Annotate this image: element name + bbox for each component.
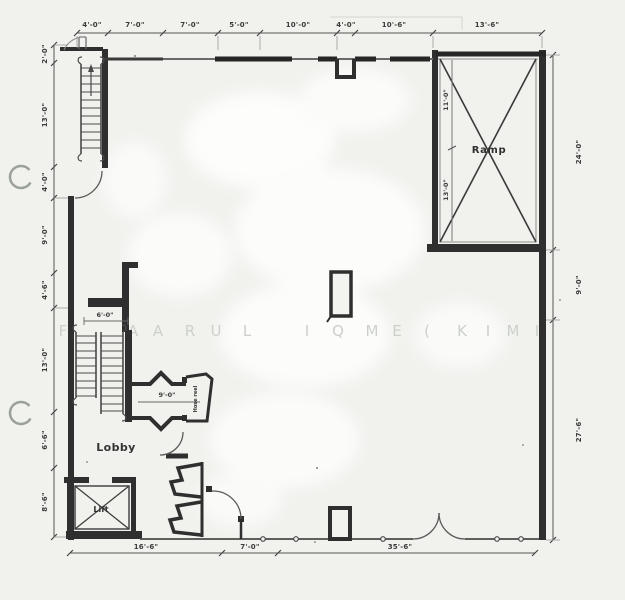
dim-right-1: 9'-0": [575, 275, 583, 294]
punch-hole-bottom: [10, 402, 31, 424]
watermark-letter: F: [59, 322, 68, 340]
watermark-letter: M: [366, 322, 379, 340]
wall-right: [539, 50, 546, 540]
dim-top-0: 4'-0": [82, 21, 101, 29]
wall-corridor-bottom: [132, 418, 186, 429]
watermark-letter: M: [507, 322, 520, 340]
floor-plan-drawing: F A A R U L I Q M E ( K I M I: [0, 0, 625, 600]
double-door-arc-left: [413, 513, 439, 539]
dim-right-2: 27'-6": [575, 418, 583, 443]
dim-left-1: 13'-0": [41, 103, 49, 128]
watermark-letter: I: [535, 322, 539, 340]
dim-left-6: 6'-6": [41, 430, 49, 449]
dim-top-5: 4'-0": [336, 21, 355, 29]
watermark-letter: Q: [332, 322, 344, 340]
dim-bottom-0: 16'-6": [134, 543, 159, 551]
dim-stair-opening: 6'-0": [96, 311, 113, 319]
dim-corridor: 9'-0": [158, 391, 175, 399]
wall-l-top: [122, 262, 138, 268]
wall-hose-reel-closet: [186, 374, 212, 421]
watermark-letter: I: [305, 322, 309, 340]
watermark-letter: E: [392, 322, 401, 340]
door-arc-corridor: [160, 432, 183, 455]
dim-top-4: 10'-0": [286, 21, 311, 29]
steps-zigzag-upper: [171, 464, 201, 497]
wall-stair-shaft: [102, 49, 108, 168]
dim-bottom-2: 35'-6": [388, 543, 413, 551]
watermark-letter: U: [211, 322, 222, 340]
dim-top-7: 13'-6": [475, 21, 500, 29]
ramp-label: Ramp: [472, 145, 506, 156]
punch-hole-top: [10, 166, 31, 188]
wall-stair2: [125, 330, 132, 422]
dim-ramp-0: 11'-0": [442, 89, 450, 111]
scanned-floor-plan-page: F A A R U L I Q M E ( K I M I: [0, 0, 625, 600]
wall-corridor-top: [132, 373, 186, 384]
dim-top-2: 7'-0": [180, 21, 199, 29]
dim-left-5: 13'-0": [41, 348, 49, 373]
dim-left-2: 4'-0": [41, 172, 49, 191]
dim-left-3: 9'-0": [41, 225, 49, 244]
column-bottom: [330, 508, 350, 539]
dim-top-1: 7'-0": [125, 21, 144, 29]
dim-top-6: 10'-6": [382, 21, 407, 29]
dim-top-3: 5'-0": [229, 21, 248, 29]
stairs-double: [73, 325, 126, 421]
wall-ramp-bottom: [427, 244, 546, 252]
dim-right-0: 24'-0": [575, 140, 583, 165]
dim-ramp-1: 13'-0": [442, 179, 450, 201]
lobby-label: Lobby: [96, 441, 136, 454]
wall-lift-bottom: [66, 531, 142, 539]
double-door-arc-right: [439, 513, 465, 539]
door-arc-stair-upper: [75, 171, 102, 198]
stairs-upper: [78, 57, 104, 161]
paper-texture: [103, 68, 505, 526]
dim-left-4: 4'-6": [41, 280, 49, 299]
watermark-letter: (: [424, 322, 430, 340]
watermark-letter: A: [153, 322, 164, 340]
hose-reel-label: Hose reel: [193, 385, 199, 412]
watermark-letter: K: [457, 322, 468, 340]
steps-zigzag-lower: [170, 502, 201, 535]
dim-bottom-1: 7'-0": [240, 543, 259, 551]
wall-divider: [88, 298, 123, 307]
watermark-letter: L: [243, 322, 252, 340]
lift-label: Lift: [93, 505, 108, 514]
column-middle: [331, 272, 351, 316]
watermark-letter: I: [486, 322, 490, 340]
punch-holes: [10, 166, 31, 424]
dim-left-0: 2'-0": [41, 44, 49, 63]
wall-ramp-left: [432, 50, 438, 246]
watermark-letter: R: [185, 322, 195, 340]
dim-left-7: 8'-6": [41, 492, 49, 511]
